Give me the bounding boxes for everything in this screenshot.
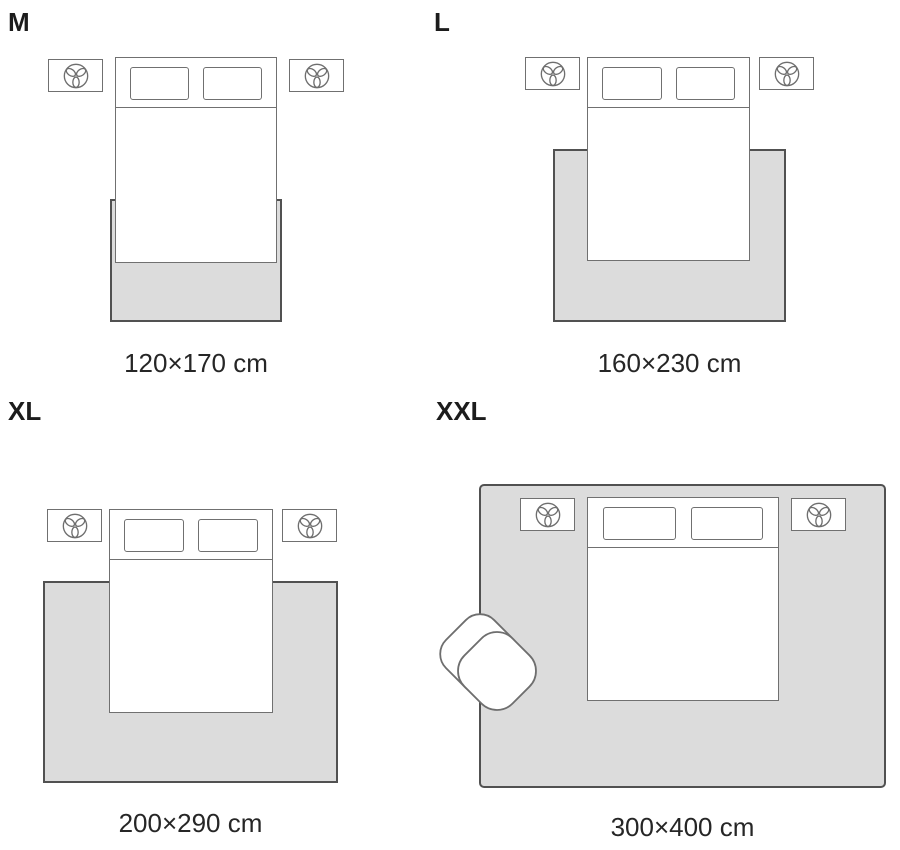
nightstand-right-xxl: [791, 498, 846, 531]
plant-icon: [533, 500, 563, 530]
pillow-left: [124, 519, 184, 552]
nightstand-right-l: [759, 57, 814, 90]
bed-headboard: [588, 58, 749, 108]
rug-size-guide: M 120×170 cm: [0, 0, 900, 850]
nightstand-left-l: [525, 57, 580, 90]
nightstand-left-xl: [47, 509, 102, 542]
nightstand-right-m: [289, 59, 344, 92]
plant-icon: [60, 511, 90, 541]
nightstand-left-xxl: [520, 498, 575, 531]
nightstand-right-xl: [282, 509, 337, 542]
pillow-right: [198, 519, 258, 552]
size-label-xxl: XXL: [436, 396, 487, 427]
pillow-left: [602, 67, 662, 100]
nightstand-left-m: [48, 59, 103, 92]
bed-xl: [109, 509, 273, 713]
bed-l: [587, 57, 750, 261]
bed-xxl: [587, 497, 779, 701]
pillow-right: [691, 507, 764, 540]
bed-m: [115, 57, 277, 263]
armchair: [437, 608, 542, 716]
bed-headboard: [116, 58, 276, 108]
plant-icon: [804, 500, 834, 530]
pillow-left: [130, 67, 189, 100]
plant-icon: [302, 61, 332, 91]
plant-icon: [61, 61, 91, 91]
plant-icon: [295, 511, 325, 541]
bed-headboard: [588, 498, 778, 548]
pillow-left: [603, 507, 676, 540]
plant-icon: [538, 59, 568, 89]
pillow-right: [676, 67, 736, 100]
pillow-right: [203, 67, 262, 100]
plant-icon: [772, 59, 802, 89]
dimension-label-xxl: 300×400 cm: [479, 812, 886, 843]
bed-headboard: [110, 510, 272, 560]
